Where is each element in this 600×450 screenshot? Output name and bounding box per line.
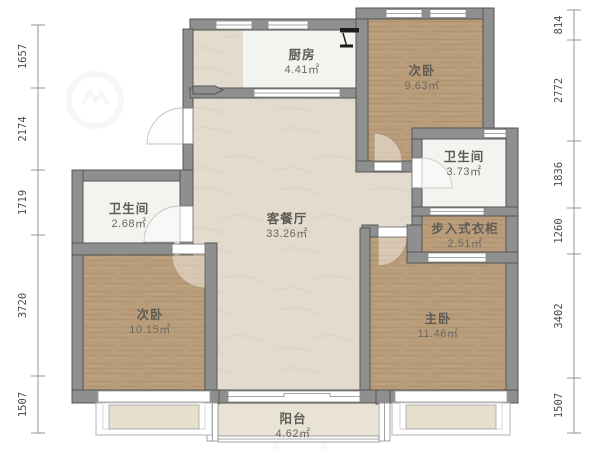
dim-label: 1719 bbox=[17, 190, 29, 215]
opening-closet-master bbox=[428, 253, 486, 262]
balcony-side-window bbox=[379, 403, 390, 441]
floor-master-bedroom bbox=[370, 263, 507, 390]
kitchen-pass-through bbox=[254, 89, 340, 97]
window-icon bbox=[268, 21, 308, 29]
dim-label: 1507 bbox=[553, 393, 565, 418]
balcony-sliding-door bbox=[228, 391, 360, 402]
dim-label: 1507 bbox=[17, 392, 29, 417]
balcony-railing bbox=[218, 436, 379, 442]
floor-walk-in-closet bbox=[422, 216, 507, 253]
window-icon bbox=[430, 10, 466, 18]
dim-label: 1657 bbox=[17, 44, 29, 69]
dim-label: 2772 bbox=[553, 78, 565, 103]
window-icon bbox=[216, 21, 252, 29]
dim-label: 1836 bbox=[553, 162, 565, 187]
dim-label: 3402 bbox=[553, 303, 565, 328]
floorplan-viewer: 1657 2174 1719 3720 1507 814 2772 1836 1… bbox=[0, 0, 600, 450]
dimension-scale-right bbox=[567, 10, 581, 433]
floor-living bbox=[217, 243, 365, 391]
bay-window-master bbox=[392, 391, 510, 435]
bay-window-bedroom-left bbox=[96, 391, 212, 435]
dimension-labels-left: 1657 2174 1719 3720 1507 bbox=[17, 44, 29, 417]
dim-label: 1260 bbox=[553, 218, 565, 243]
floorplan-drawing: 1657 2174 1719 3720 1507 814 2772 1836 1… bbox=[0, 0, 600, 450]
dimension-scale-left bbox=[31, 25, 45, 433]
floor-bedroom-top-right bbox=[367, 18, 484, 132]
entry-door bbox=[147, 108, 193, 144]
window-icon bbox=[386, 10, 422, 18]
opening-bath-closet bbox=[430, 208, 484, 215]
entry-wall-stub bbox=[193, 86, 223, 94]
dim-label: 2174 bbox=[17, 116, 29, 141]
window-icon bbox=[484, 130, 506, 138]
floor-balcony bbox=[218, 403, 378, 436]
dim-label: 814 bbox=[553, 16, 565, 35]
floors bbox=[83, 18, 507, 436]
dim-label: 3720 bbox=[17, 293, 29, 318]
dimension-labels-right: 814 2772 1836 1260 3402 1507 bbox=[553, 16, 565, 419]
floor-kitchen bbox=[243, 29, 357, 89]
